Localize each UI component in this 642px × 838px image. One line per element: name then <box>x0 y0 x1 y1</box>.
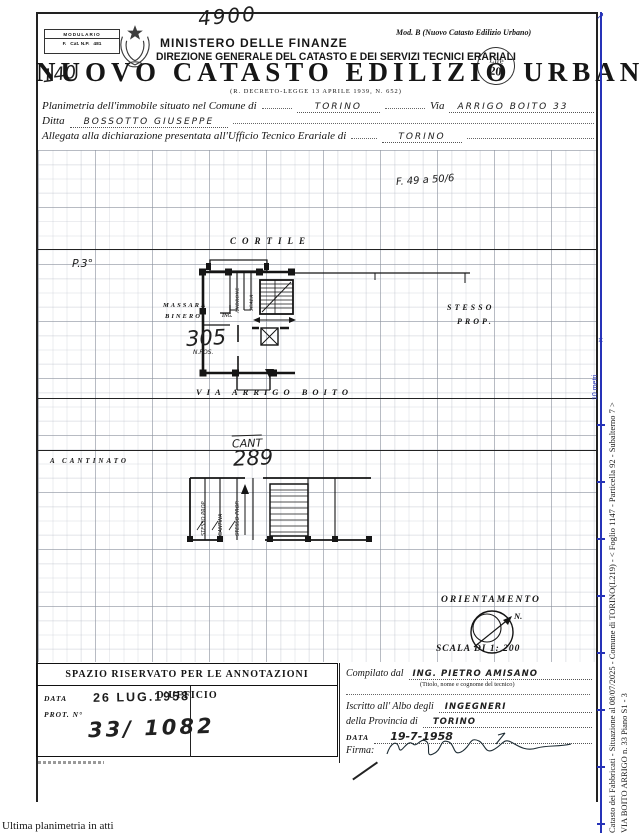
androne-label: ANDRONE <box>236 287 241 313</box>
ruler-scale-label: 10 metri <box>592 375 599 400</box>
province-value: TORINO <box>423 717 592 728</box>
sidebar-metadata: Catasto dei Fabbricati - Situazione al 0… <box>606 402 630 833</box>
mod-b-label: Mod. B (Nuovo Catasto Edilizio Urbano) <box>396 28 531 37</box>
ruler-tick <box>597 766 605 768</box>
ingresso-label: ING. <box>222 314 232 319</box>
prot-label: PROT. N° <box>44 710 83 719</box>
ruler-tick <box>597 595 605 597</box>
form-row-ufficio: Allegata alla dichiarazione presentata a… <box>42 127 594 143</box>
signature <box>385 730 575 762</box>
document-subtitle: (R. DECRETO-LEGGE 13 APRILE 1939, N. 652… <box>36 88 596 95</box>
form-row-ditta: Ditta BOSSOTTO GIUSEPPE <box>42 112 594 128</box>
floor-plan-svg <box>125 250 480 405</box>
scala-label: SCALA <box>250 294 255 311</box>
form-value-ufficio: TORINO <box>382 132 461 143</box>
office-annotations-header: SPAZIO RISERVATO PER LE ANNOTAZIONI D'UF… <box>36 663 338 686</box>
date-stamp: 26 LUG.1958 <box>93 689 190 705</box>
albo-label: Iscritto all' Albo degli <box>346 701 434 712</box>
boundary-line-basement <box>36 450 597 451</box>
ruler-tick <box>597 481 605 483</box>
street-name-label: VIA ARRIGO BOITO <box>196 387 353 397</box>
scale-label: SCALA DI 1: 200 <box>436 644 520 654</box>
basement-micro-label-3: STESSO PROP. <box>235 501 241 536</box>
basement-floor-label: A CANTINATO <box>50 457 129 465</box>
albo-value: INGEGNERI <box>439 702 592 713</box>
handwritten-4900: 4900 <box>197 1 258 30</box>
compiler-date-label: DATA <box>346 733 369 742</box>
compiled-by-label: Compilato dal <box>346 668 404 679</box>
modulario-line2: F. Cat. N.P. 481 <box>45 39 119 47</box>
dotted-rule <box>346 694 590 695</box>
form-label-ditta: Ditta <box>42 115 65 127</box>
basement-micro-label-2: CANTINA <box>218 514 224 536</box>
form-row-comune: Planimetria dell'immobile situato nel Co… <box>42 97 594 113</box>
frame-right <box>596 12 598 802</box>
ruler-arrow-mark: ↗ <box>596 11 604 22</box>
form-label-allegata: Allegata alla dichiarazione presentata a… <box>42 130 346 142</box>
compiled-by-value: ING. PIETRO AMISANO <box>409 669 592 680</box>
stesso-prop-line2: PROP. <box>457 317 494 326</box>
ruler-tick <box>597 652 605 654</box>
modulario-stamp-box: MODULARIO F. Cat. N.P. 481 <box>44 29 120 54</box>
cant-number: 289 <box>233 445 274 470</box>
form-label-via: Via <box>430 100 444 112</box>
frame-top <box>36 12 597 14</box>
neighbor-name-line1: MASSARA <box>163 302 207 309</box>
province-row: della Provincia di TORINO <box>346 716 592 728</box>
ruler-tick <box>597 538 605 540</box>
province-label: della Provincia di <box>346 716 418 727</box>
basement-micro-label-1: STESSO PROP. <box>201 501 207 536</box>
compiled-by-subcaption: (Titolo, nome e cognome del tecnico) <box>420 681 515 688</box>
modulario-line1: MODULARIO <box>45 30 119 39</box>
unit-number: 305 <box>185 325 226 351</box>
fine-print-imprint <box>38 761 104 764</box>
form-label-planimetria: Planimetria dell'immobile situato nel Co… <box>42 100 257 112</box>
firma-label: Firma: <box>346 745 374 756</box>
compiled-by-row: Compilato dal ING. PIETRO AMISANO <box>346 668 592 680</box>
unit-number-sub: N.POS. <box>193 349 213 356</box>
ruler-cross-mark: × <box>598 335 603 345</box>
ministry-title: MINISTERO DELLE FINANZE <box>160 36 348 50</box>
basement-plan-svg <box>145 470 375 565</box>
albo-row: Iscritto all' Albo degli INGEGNERI <box>346 701 592 713</box>
graph-paper-grid <box>38 150 596 662</box>
data-label: DATA <box>44 694 67 703</box>
stesso-prop-line1: STESSO <box>447 303 494 312</box>
footer-caption: Ultima planimetria in atti <box>2 820 114 832</box>
neighbor-name-line2: BINERO <box>165 313 202 320</box>
ruler-tick <box>597 424 605 426</box>
cortile-label: CORTILE <box>230 236 311 246</box>
pen-stroke <box>352 762 377 780</box>
north-label: N. <box>514 611 522 621</box>
protocol-number: 33/ 1082 <box>88 714 215 742</box>
compiler-divider <box>339 663 340 763</box>
sidebar-line2: VIA BOITO ARRIGO n. 33 Piano S1 - 3 <box>618 402 630 833</box>
ruler-tick <box>597 823 605 825</box>
sidebar-line1: Catasto dei Fabbricati - Situazione al 0… <box>606 402 618 833</box>
ruler-tick <box>597 709 605 711</box>
document-title: NUOVO CATASTO EDILIZIO URBANO <box>36 57 596 88</box>
floor-number-label: P.3° <box>72 257 93 270</box>
scanned-cadastral-document: MODULARIO F. Cat. N.P. 481 4900 MINISTER… <box>0 0 642 838</box>
